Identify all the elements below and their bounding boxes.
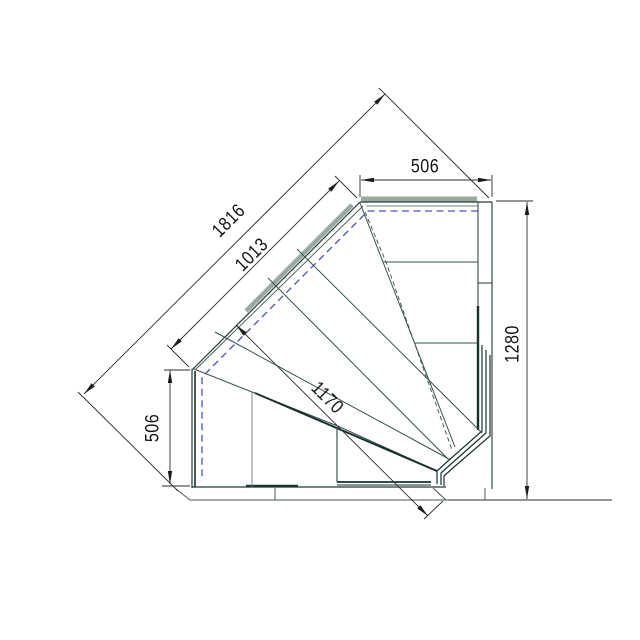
dim-label-right-side-depth: 1280	[504, 325, 523, 363]
dim-value: 1280	[503, 325, 524, 363]
dimension-arrowheads	[84, 94, 529, 516]
body-outline	[192, 202, 492, 489]
deck-fan-lines	[194, 203, 482, 487]
dim-label-top-end-width: 506	[411, 158, 439, 177]
dim-value: 506	[411, 157, 439, 178]
corner-counter-plan-drawing	[0, 0, 640, 640]
corner-glass-band	[337, 345, 490, 486]
plinth-outline	[176, 488, 485, 500]
dimension-lines	[78, 88, 612, 519]
glass-band-lines	[246, 199, 477, 311]
drawing-canvas: 506 1280 1816 1013 1170 506	[0, 0, 640, 640]
dim-value: 506	[143, 414, 164, 442]
dim-label-left-end-width: 506	[144, 414, 163, 442]
